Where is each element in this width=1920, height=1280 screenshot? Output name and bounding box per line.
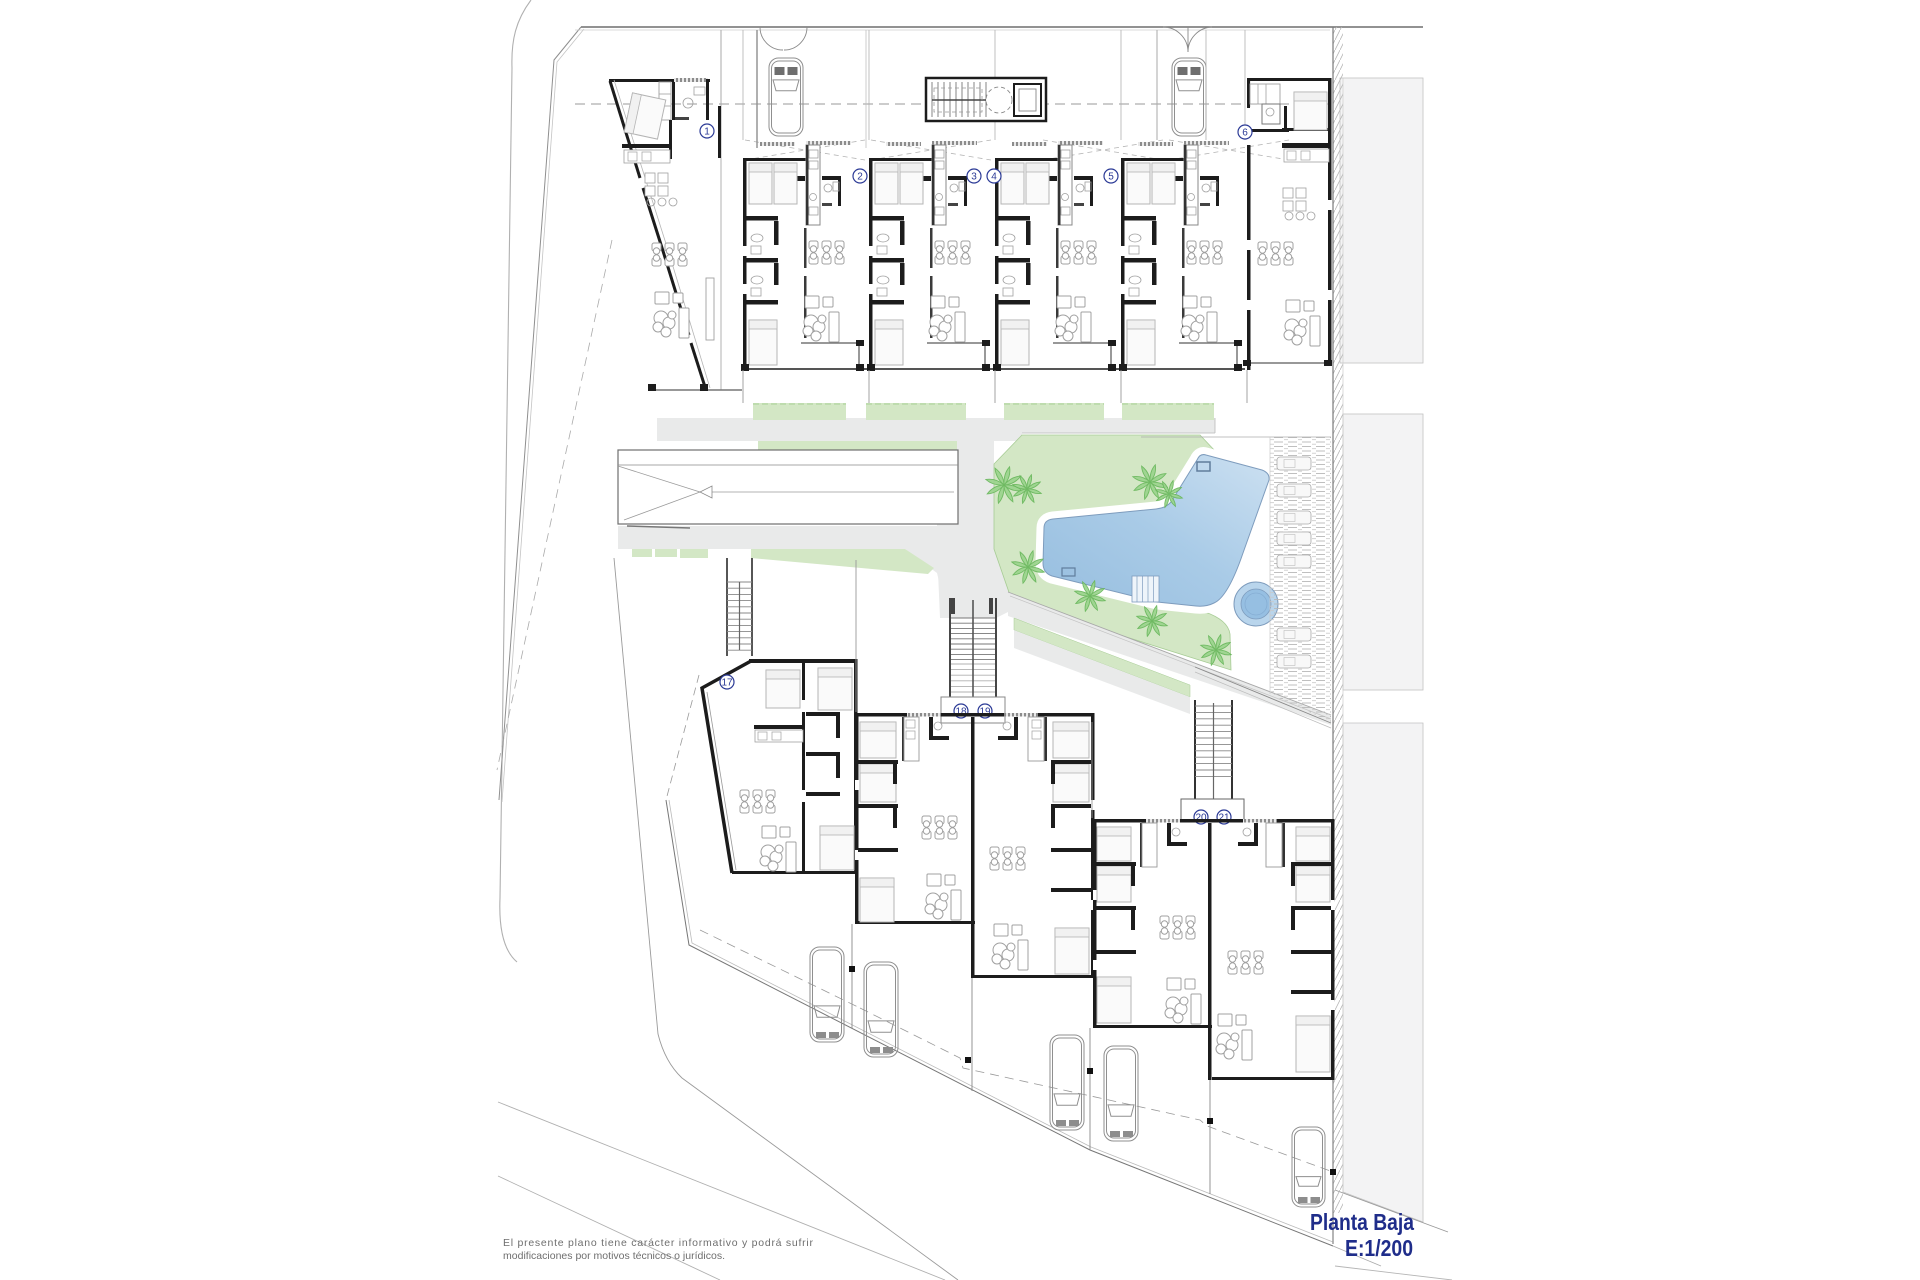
svg-text:3: 3 <box>971 172 977 183</box>
svg-text:6: 6 <box>1242 128 1248 139</box>
svg-text:Planta Baja: Planta Baja <box>1310 1209 1414 1235</box>
svg-text:5: 5 <box>1108 172 1114 183</box>
svg-text:4: 4 <box>991 172 997 183</box>
svg-text:2: 2 <box>857 172 863 183</box>
svg-text:modificaciones por motivos téc: modificaciones por motivos técnicos o ju… <box>503 1250 725 1262</box>
svg-text:1: 1 <box>704 127 710 138</box>
svg-text:El presente plano tiene caráct: El presente plano tiene carácter informa… <box>503 1237 814 1249</box>
svg-text:E:1/200: E:1/200 <box>1345 1235 1413 1261</box>
svg-text:17: 17 <box>721 678 733 689</box>
